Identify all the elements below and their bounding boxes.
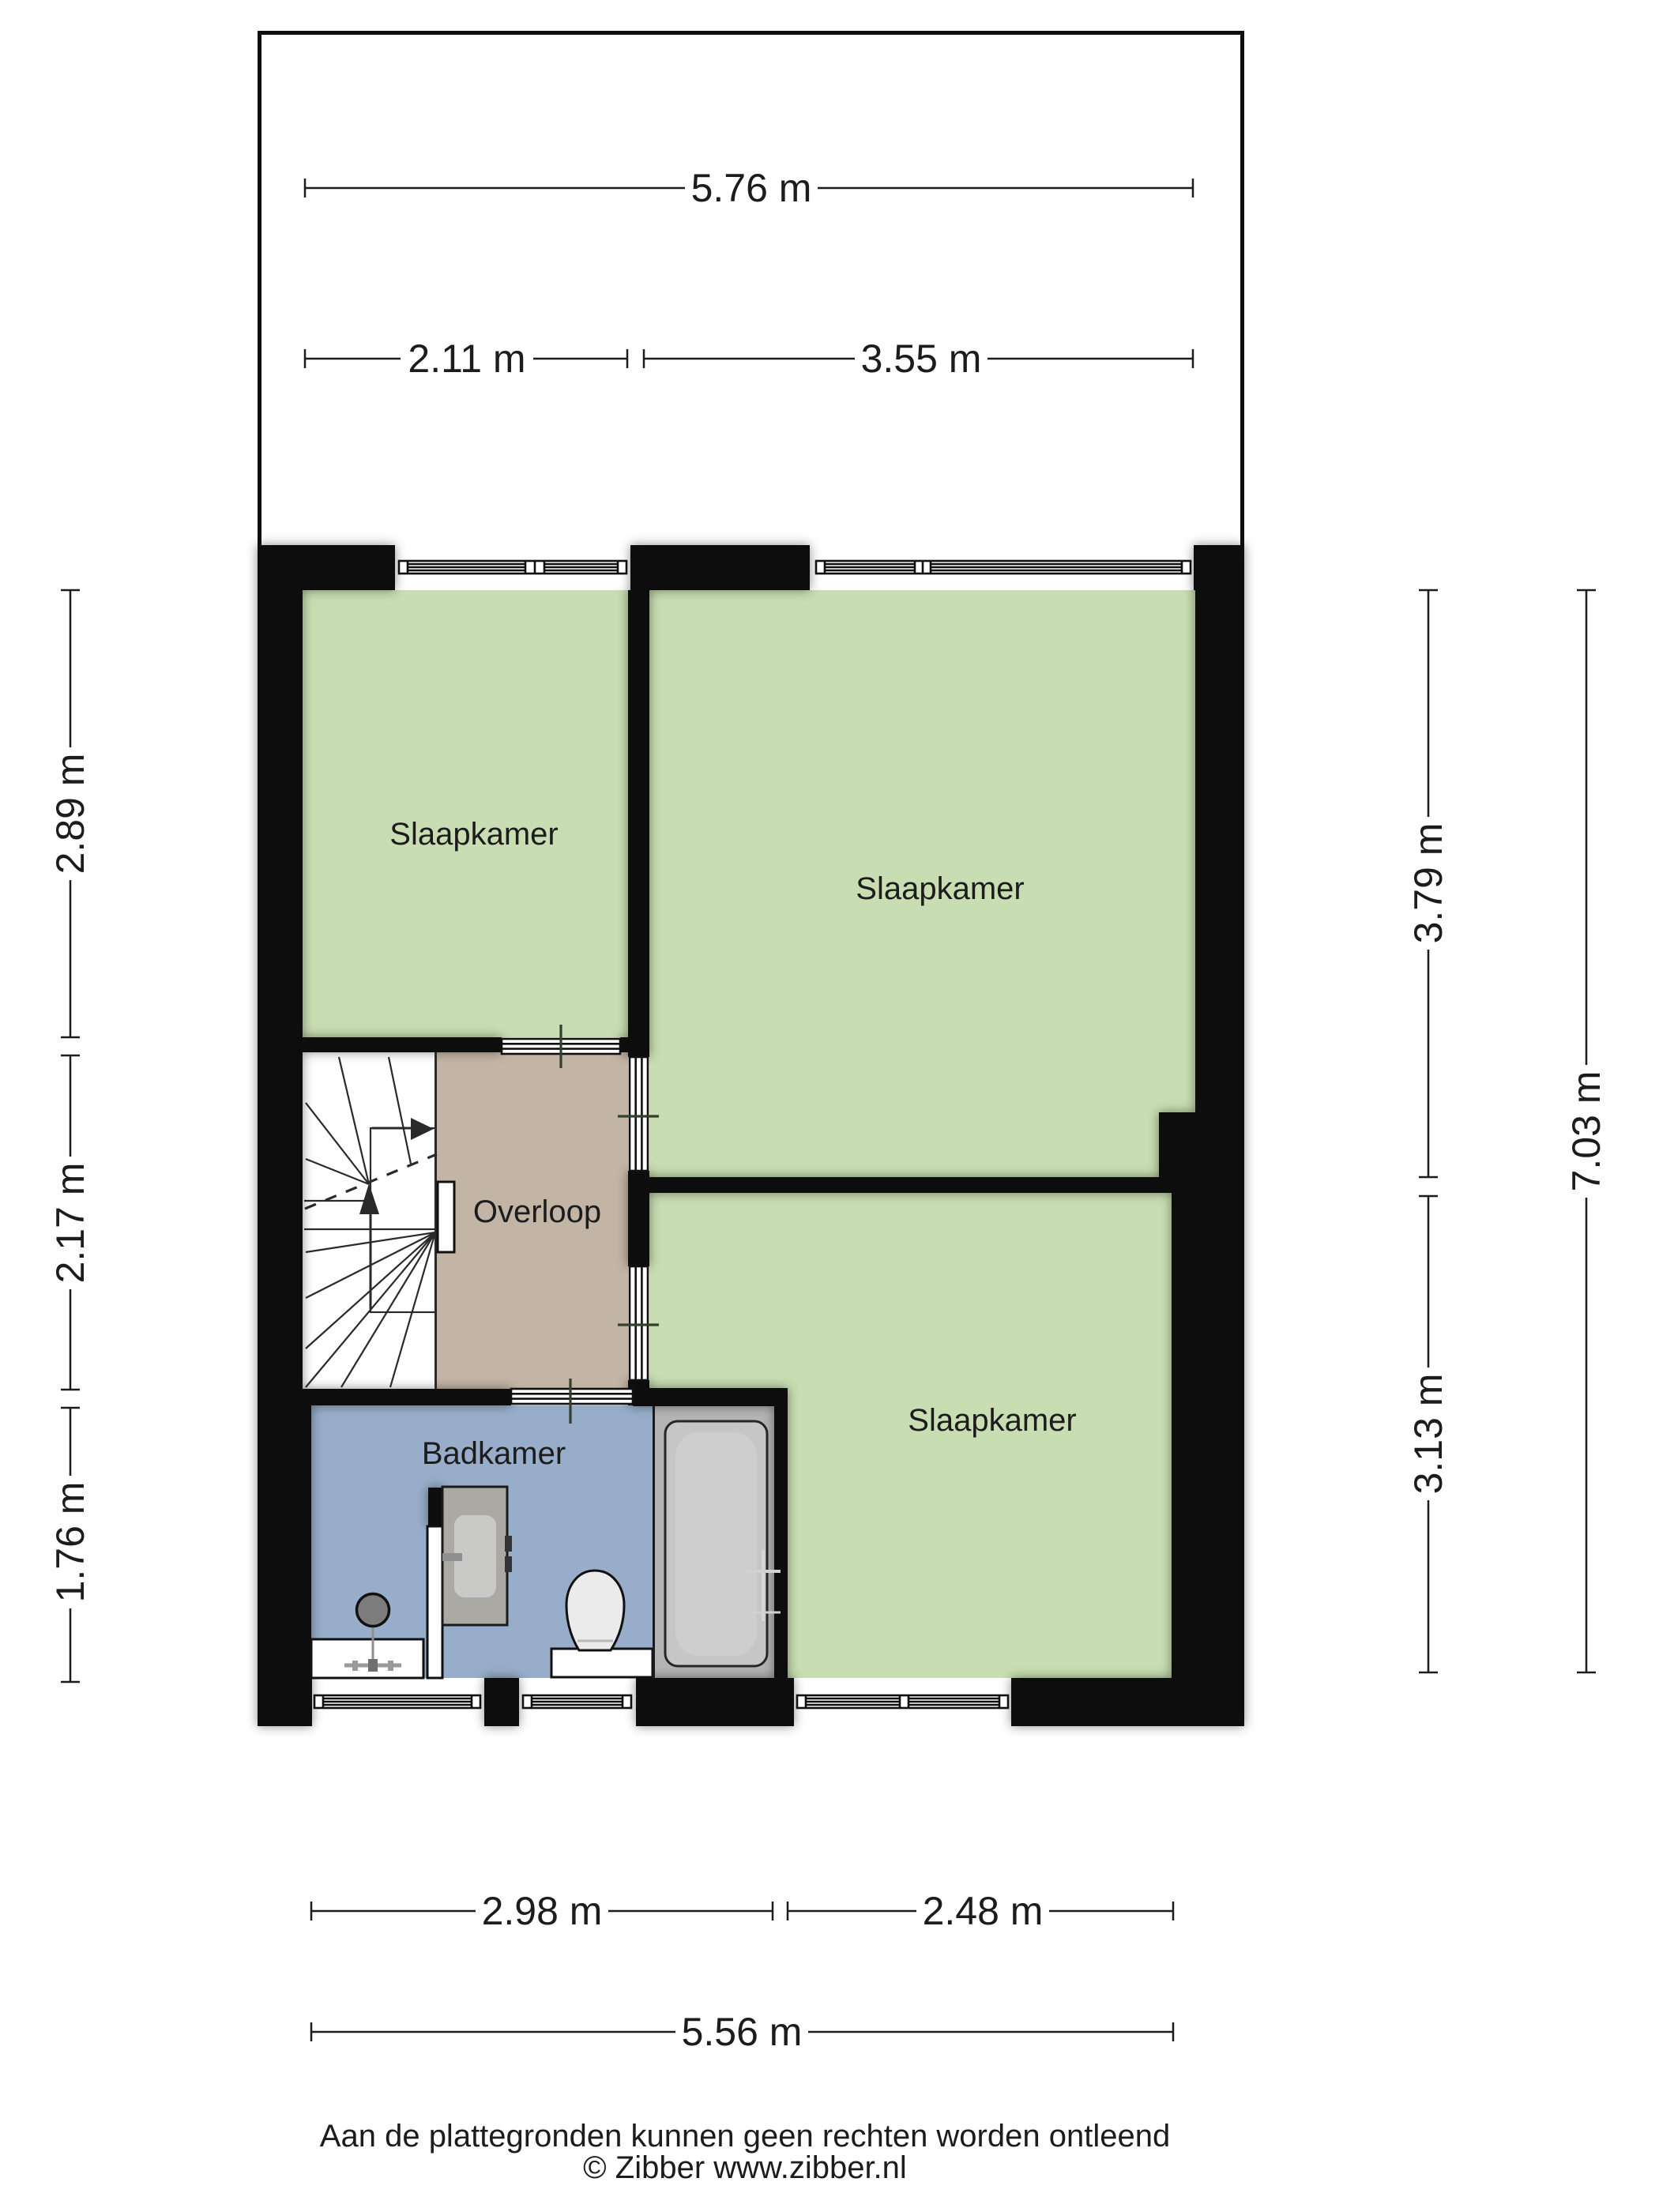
svg-text:2.11 m: 2.11 m: [408, 337, 525, 381]
svg-text:Overloop: Overloop: [473, 1194, 601, 1229]
svg-text:2.89 m: 2.89 m: [48, 754, 92, 875]
svg-text:5.76 m: 5.76 m: [691, 166, 812, 210]
svg-text:5.56 m: 5.56 m: [682, 2010, 803, 2054]
svg-text:3.55 m: 3.55 m: [861, 337, 982, 381]
svg-text:Badkamer: Badkamer: [422, 1436, 566, 1471]
svg-text:Slaapkamer: Slaapkamer: [908, 1403, 1076, 1438]
svg-text:2.48 m: 2.48 m: [923, 1889, 1044, 1933]
svg-text:7.03 m: 7.03 m: [1564, 1071, 1608, 1192]
svg-text:3.13 m: 3.13 m: [1406, 1374, 1450, 1495]
svg-text:2.98 m: 2.98 m: [482, 1889, 603, 1933]
svg-text:1.76 m: 1.76 m: [48, 1482, 92, 1603]
svg-text:Aan de plattegronden kunnen ge: Aan de plattegronden kunnen geen rechten…: [320, 2119, 1170, 2154]
svg-text:Slaapkamer: Slaapkamer: [856, 871, 1024, 906]
svg-text:3.79 m: 3.79 m: [1406, 823, 1450, 944]
svg-text:© Zibber www.zibber.nl: © Zibber www.zibber.nl: [583, 2150, 907, 2185]
svg-text:2.17 m: 2.17 m: [48, 1163, 92, 1284]
svg-text:Slaapkamer: Slaapkamer: [389, 817, 558, 852]
